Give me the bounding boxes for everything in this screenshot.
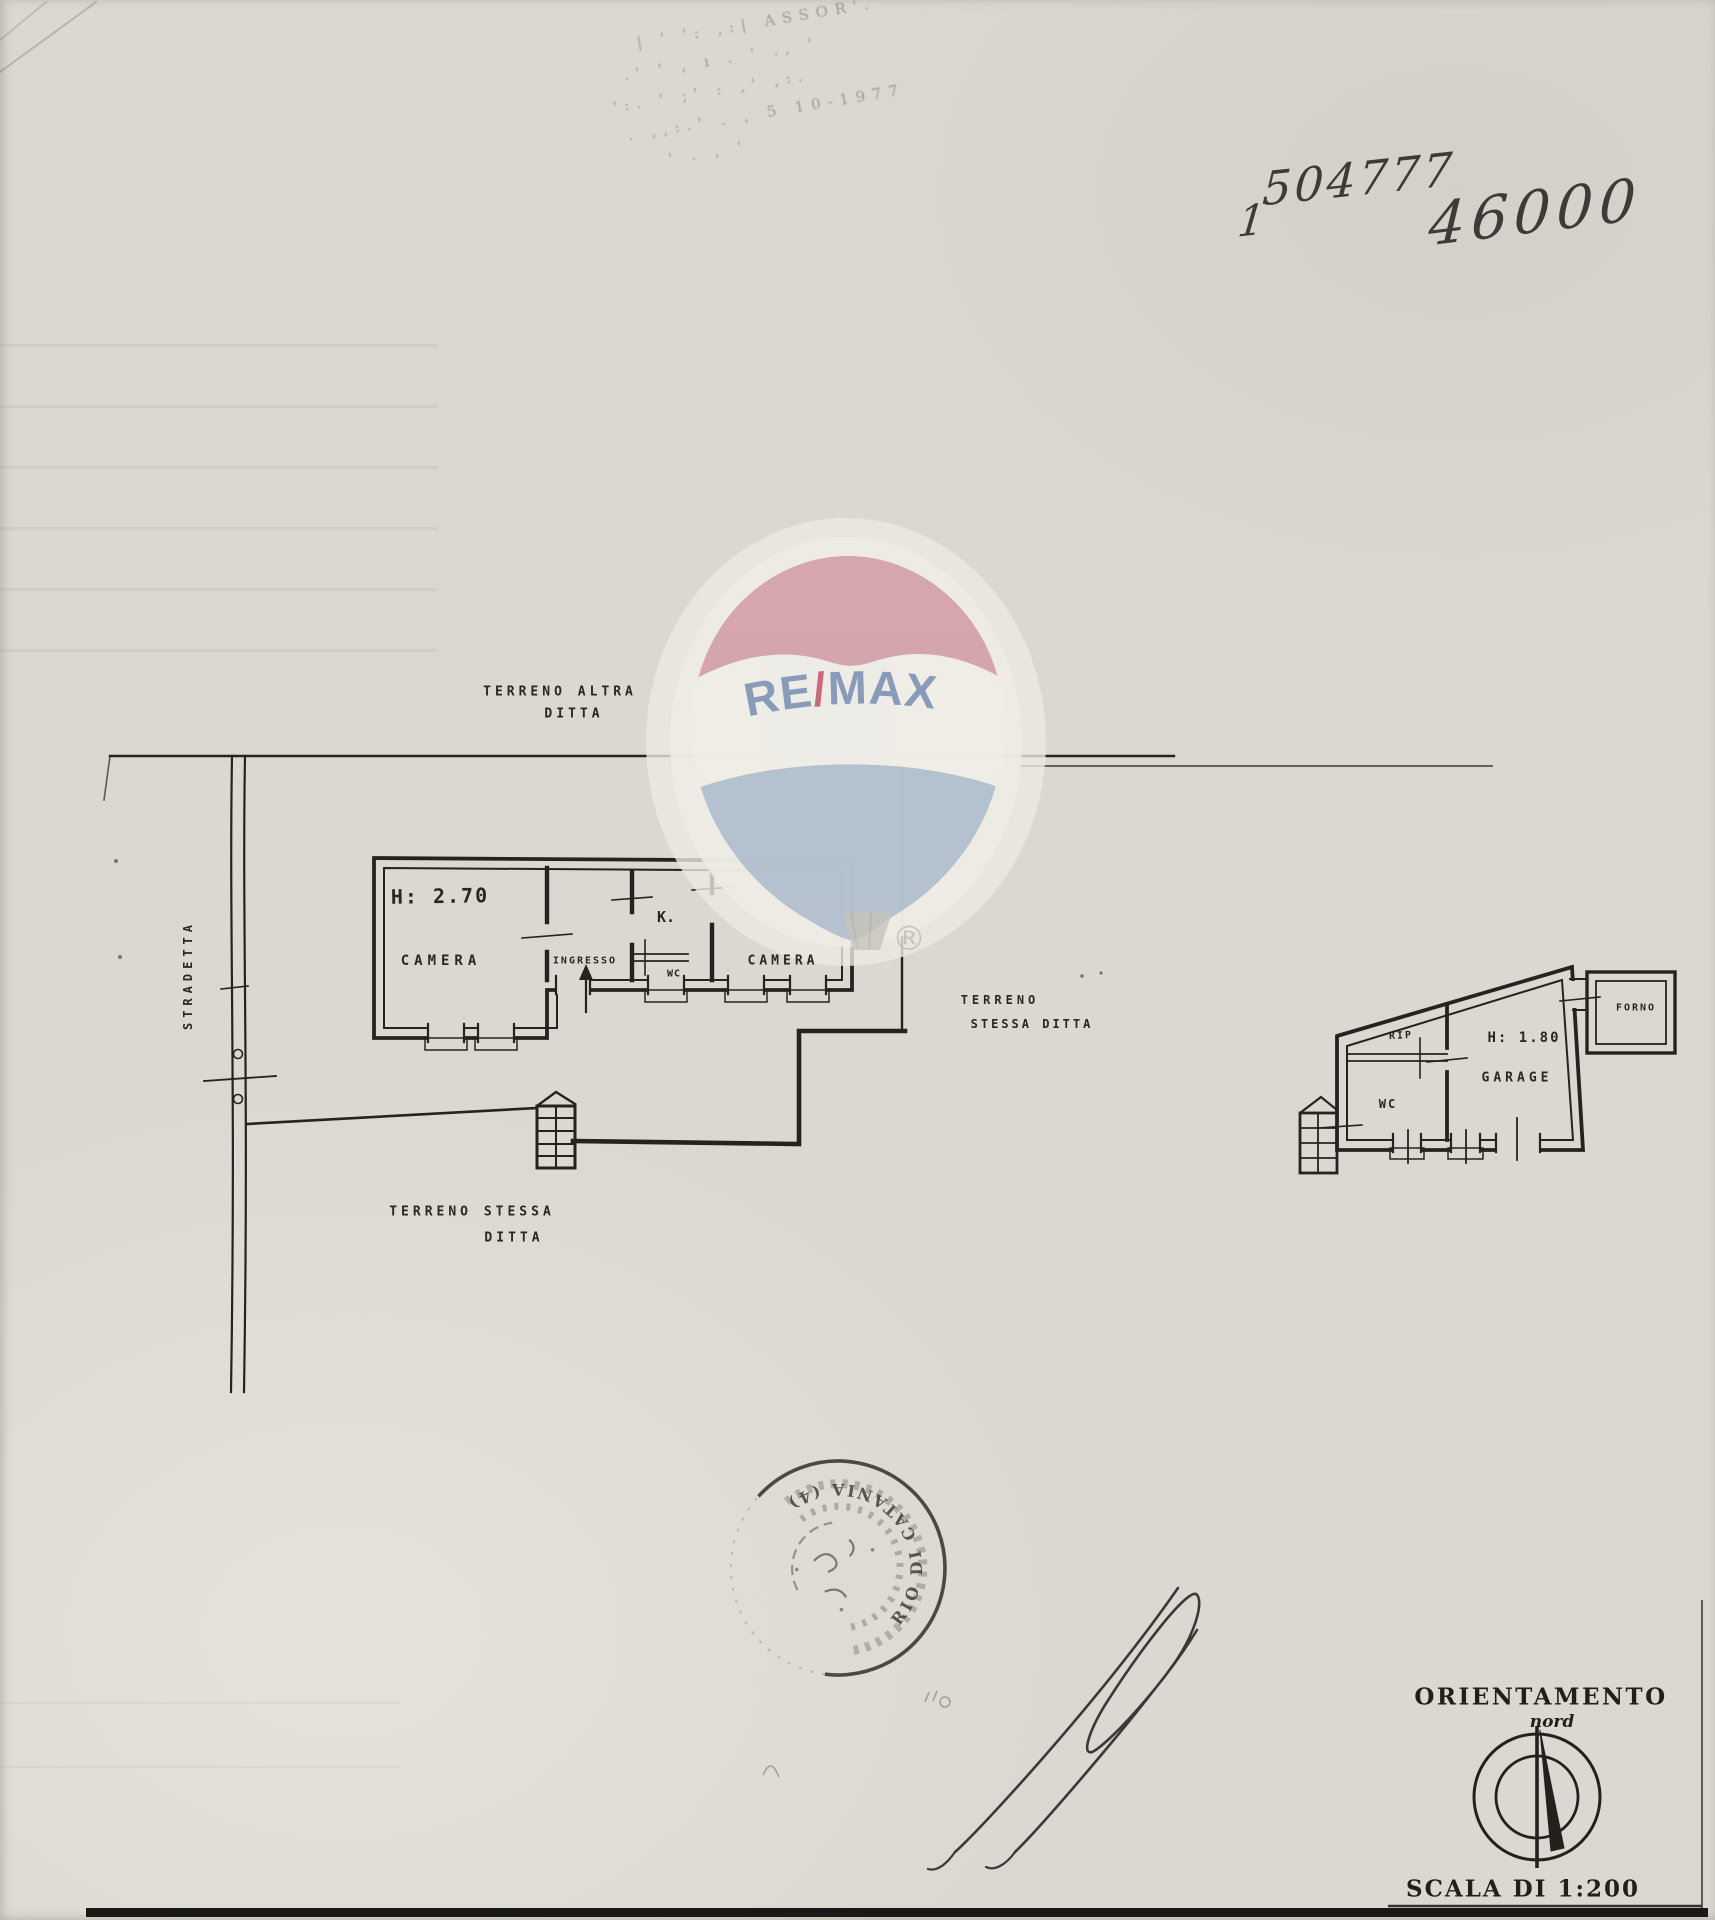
page-frame	[86, 1600, 1708, 1917]
orientation-title: ORIENTAMENTO	[1414, 1684, 1667, 1711]
bottom-scan-bar	[86, 1908, 1708, 1917]
scanned-floor-plan-page: ´ '' ¹ ''' ' | | ' ': ,:| ASSOR'. .' ' ,…	[0, 0, 1715, 1920]
compass-icon	[1474, 1726, 1600, 1868]
stamp-arc-text: RIO DI CATANIA (4)	[761, 1467, 943, 1631]
overlay-marks: RIO DI CATANIA (4)	[0, 0, 1715, 1920]
stamp-center-marks	[808, 1533, 858, 1597]
scale-text: SCALA DI 1:200	[1406, 1876, 1640, 1903]
round-registry-stamp: RIO DI CATANIA (4)	[711, 1441, 965, 1695]
signature	[928, 1588, 1199, 1870]
pen-residue-marks	[763, 1691, 950, 1777]
orientation-sub: nord	[1530, 1712, 1575, 1732]
